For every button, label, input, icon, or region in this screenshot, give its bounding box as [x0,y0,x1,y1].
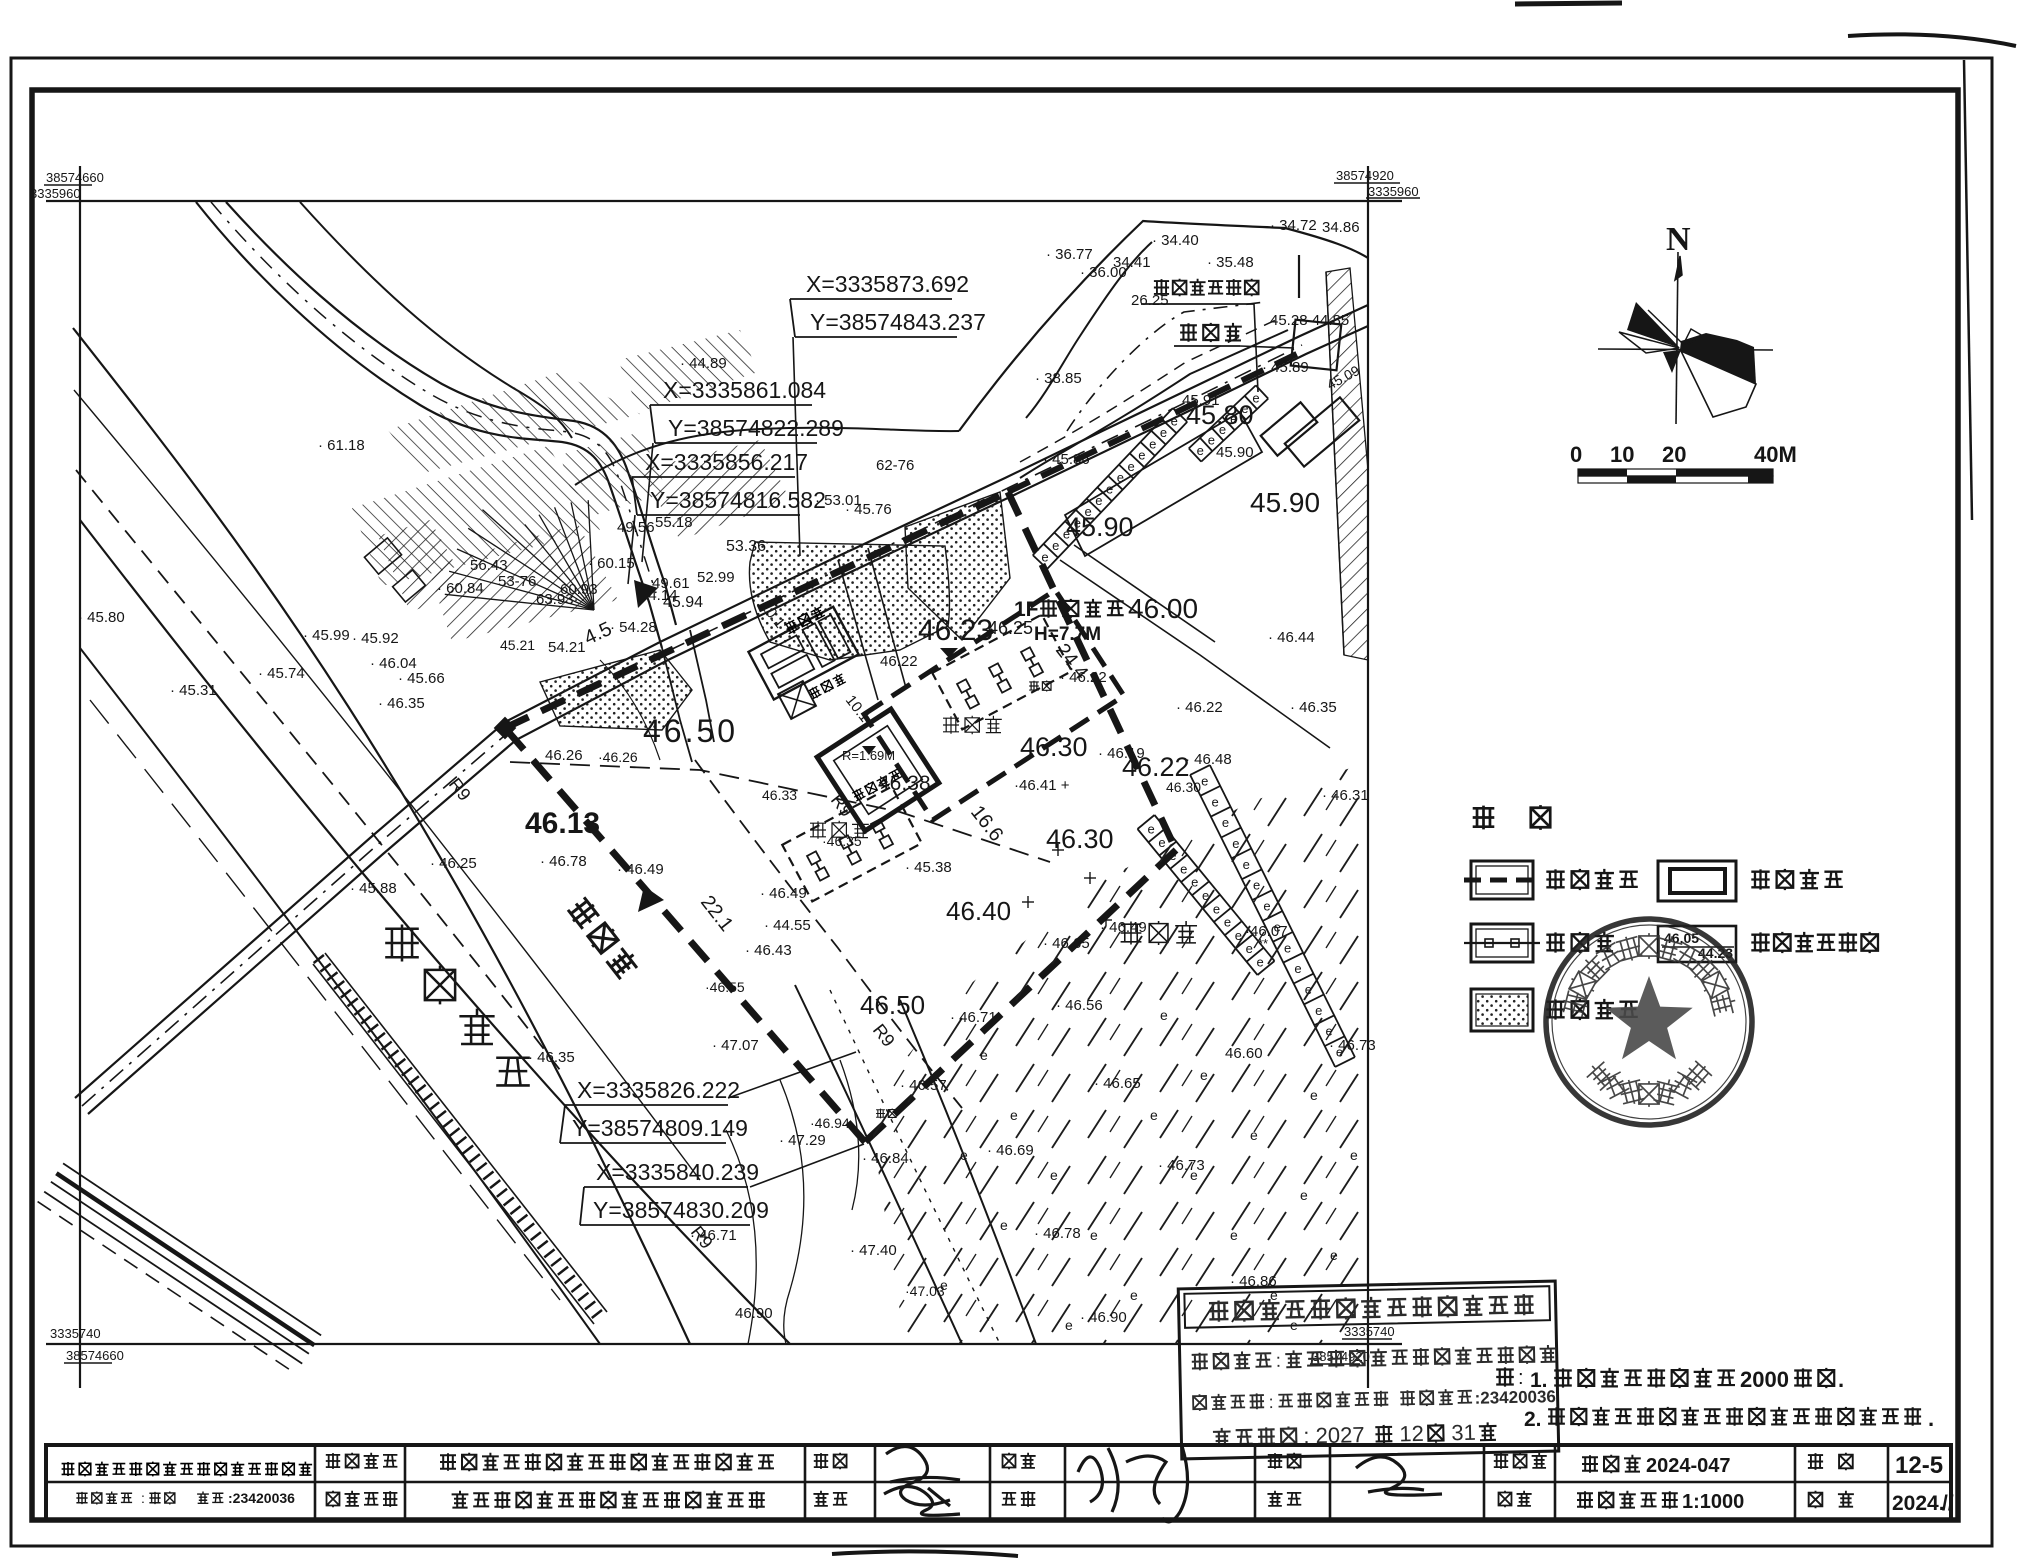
svg-text:46.25: 46.25 [988,618,1033,638]
svg-text:· 46.44: · 46.44 [1268,629,1315,646]
svg-text:e: e [1010,1107,1018,1123]
svg-text:e: e [1063,527,1070,542]
svg-text:· 46.22: · 46.22 [1060,669,1107,686]
svg-text:· 34.72: · 34.72 [1270,217,1317,234]
svg-text::: : [1518,1367,1524,1389]
svg-text:46.50: 46.50 [643,713,738,749]
svg-text:· 44.55: · 44.55 [764,917,811,934]
svg-text:e: e [1160,1007,1168,1023]
svg-text:e: e [1074,515,1081,530]
svg-text:· 34.40: · 34.40 [1152,232,1199,249]
svg-text:· 46.71: · 46.71 [690,1227,737,1244]
svg-text:38574660: 38574660 [66,1348,124,1363]
svg-text:·46.35: ·46.35 [822,833,862,849]
svg-text:e: e [1147,822,1154,837]
svg-text:· 45.80: · 45.80 [78,609,125,626]
svg-text:· 47.40: · 47.40 [850,1242,897,1259]
svg-text:e: e [960,1147,968,1163]
svg-text:e: e [1230,1227,1238,1243]
svg-text:· 46.19: · 46.19 [1098,745,1145,762]
svg-text:45.90: 45.90 [1216,444,1254,461]
svg-text:· 45.99: · 45.99 [303,627,350,644]
svg-text:52.99: 52.99 [697,569,735,586]
svg-text:X=3335826.222: X=3335826.222 [577,1077,740,1103]
svg-text:46.50: 46.50 [860,990,925,1020]
svg-text:34.86: 34.86 [1322,219,1360,236]
svg-text:· 46.71: · 46.71 [950,1009,997,1026]
svg-text:49.56: 49.56 [617,519,655,536]
svg-text:46.60: 46.60 [1225,1045,1263,1062]
svg-text:.: . [1928,1406,1934,1431]
svg-text::: : [1276,1351,1282,1372]
svg-text:· 45.66: · 45.66 [398,670,445,687]
svg-text:· 46.48: · 46.48 [1185,751,1232,768]
svg-text:· 45.38: · 45.38 [905,859,952,876]
svg-text:· 44.89: · 44.89 [680,355,727,372]
svg-text:38574660: 38574660 [46,170,104,185]
svg-text:· 46.57: · 46.57 [900,1077,947,1094]
svg-text:Y=38574816.582: Y=38574816.582 [650,487,826,513]
svg-text:X=3335861.084: X=3335861.084 [663,377,826,403]
svg-text:62-76: 62-76 [876,457,914,474]
svg-text:e: e [1128,459,1135,474]
svg-text:· 61.18: · 61.18 [318,437,365,454]
svg-text:· 46.65: · 46.65 [1043,935,1090,952]
svg-text:· 36.77: · 36.77 [1046,246,1093,263]
svg-text:·46.26: ·46.26 [598,749,638,765]
svg-text:e: e [1200,1067,1208,1083]
svg-text:e: e [1241,401,1248,416]
svg-text:· 35.48: · 35.48 [1207,254,1254,271]
svg-text:e: e [1250,1127,1258,1143]
svg-text:46.33: 46.33 [762,787,797,803]
svg-text:· 46.56: · 46.56 [1056,997,1103,1014]
svg-text:· 46.69: · 46.69 [987,1142,1034,1159]
svg-text:e: e [1065,1317,1073,1333]
svg-text:·46.41 +: ·46.41 + [1014,777,1070,794]
svg-text:· 45.88: · 45.88 [350,880,397,897]
svg-text:e: e [1050,1167,1058,1183]
svg-text:2024-047: 2024-047 [1646,1455,1731,1477]
svg-text:46.90: 46.90 [735,1305,773,1322]
svg-text:·47.03: ·47.03 [905,1283,945,1299]
svg-text:0: 0 [1570,442,1582,467]
svg-text:· 46.90: · 46.90 [1080,1309,1127,1326]
svg-text:·46.94: ·46.94 [810,1115,850,1131]
svg-text:e: e [1208,432,1215,447]
svg-text:46.38: 46.38 [878,772,931,795]
svg-text:12-5: 12-5 [1895,1452,1943,1479]
svg-text:3335740: 3335740 [50,1326,101,1341]
svg-text:X=3335873.692: X=3335873.692 [806,271,969,297]
svg-text:e: e [1138,448,1145,463]
svg-text:46.00: 46.00 [1128,593,1198,624]
svg-text:e: e [1052,538,1059,553]
svg-text:46.30: 46.30 [1046,824,1114,854]
svg-text::23420036: :23420036 [228,1490,295,1506]
svg-text:· 46.49: · 46.49 [760,885,807,902]
svg-text:e: e [1149,436,1156,451]
svg-text:· 46.35: · 46.35 [528,1049,575,1066]
svg-text:46.22: 46.22 [880,653,918,670]
svg-text:3335960: 3335960 [1368,184,1419,199]
svg-text:e: e [1197,443,1204,458]
svg-text:e: e [1330,1247,1338,1263]
svg-text:e: e [1300,1187,1308,1203]
svg-text:X=3335840.239: X=3335840.239 [596,1159,759,1185]
svg-text:53-76: 53-76 [498,573,536,590]
svg-text:· 46.31: · 46.31 [1322,787,1369,804]
svg-text:· 46.78: · 46.78 [540,853,587,870]
svg-text:e: e [1171,414,1178,429]
svg-text:e: e [1310,1087,1318,1103]
svg-text:·46.55: ·46.55 [705,979,745,995]
svg-text:31: 31 [1451,1420,1476,1446]
svg-text:· 46.84: · 46.84 [862,1150,909,1167]
svg-text:46.40: 46.40 [946,896,1011,926]
svg-text:34.41: 34.41 [1113,254,1151,271]
svg-text:60.93: 60.93 [560,581,598,598]
svg-text:e: e [1252,390,1259,405]
svg-text:· 60.15: · 60.15 [588,555,635,572]
svg-text:1.: 1. [1530,1369,1548,1392]
svg-text:2.: 2. [1524,1408,1542,1431]
svg-text:· 46.25: · 46.25 [430,855,477,872]
svg-text:45.21: 45.21 [500,637,535,653]
svg-text:46.23: 46.23 [918,614,993,647]
svg-text:e: e [1212,794,1219,809]
svg-text:45.90: 45.90 [1250,487,1320,518]
svg-text:10: 10 [1610,442,1634,467]
svg-text:e: e [1000,1217,1008,1233]
svg-text:e: e [1160,425,1167,440]
svg-text:· 46.73: · 46.73 [1329,1037,1376,1054]
svg-text://: // [1942,1492,1954,1515]
svg-text:2000: 2000 [1740,1367,1789,1392]
svg-text:· 45.74: · 45.74 [258,665,305,682]
svg-text:Y=38574843.237: Y=38574843.237 [810,309,986,335]
svg-text:e: e [1090,1227,1098,1243]
svg-text:· 46.35: · 46.35 [378,695,425,712]
svg-text:**: ** [1258,936,1268,951]
svg-text:e: e [1084,504,1091,519]
svg-text:· 47.07: · 47.07 [712,1037,759,1054]
svg-text:Y=38574830.209: Y=38574830.209 [593,1197,769,1223]
svg-text:46.30: 46.30 [1166,779,1201,795]
svg-text:.: . [1838,1367,1844,1392]
svg-text:e: e [1350,1147,1358,1163]
svg-text:· 47.29: · 47.29 [779,1132,826,1149]
svg-text:54.21: 54.21 [548,639,586,656]
svg-text::: : [141,1490,145,1506]
svg-text:2024.: 2024. [1892,1492,1945,1515]
svg-text:· 38.85: · 38.85 [1035,370,1082,387]
svg-text:38574920: 38574920 [1336,168,1394,183]
svg-text:· 46.49: · 46.49 [617,861,664,878]
svg-text:46.30: 46.30 [1020,732,1088,762]
svg-text:e: e [1201,773,1208,788]
svg-text:e: e [1041,549,1048,564]
svg-text:12: 12 [1399,1421,1424,1447]
svg-text:· 46.73: · 46.73 [1158,1157,1205,1174]
svg-text:· 46.35: · 46.35 [1290,699,1337,716]
svg-text::: : [1268,1392,1273,1412]
svg-text:· 46.65: · 46.65 [1094,1075,1141,1092]
svg-text:X=3335856.217: X=3335856.217 [645,449,808,475]
svg-text:e: e [1130,1287,1138,1303]
svg-text:· 46.49: · 46.49 [1100,919,1147,936]
svg-text:· 46.43: · 46.43 [745,942,792,959]
svg-text:1:1000: 1:1000 [1682,1491,1744,1513]
svg-text:· 46.78: · 46.78 [1034,1225,1081,1242]
svg-text:Y=38574809.149: Y=38574809.149 [572,1115,748,1141]
svg-text:56.43: 56.43 [470,557,508,574]
svg-text:46.26: 46.26 [545,747,583,764]
svg-text:· 45.31: · 45.31 [170,682,217,699]
svg-text:40M: 40M [1754,442,1797,467]
svg-text:3335960: 3335960 [30,186,81,201]
svg-text:· 45.92: · 45.92 [352,630,399,647]
svg-text:· 54.28: · 54.28 [610,619,657,636]
svg-text:e: e [1150,1107,1158,1123]
svg-text:e: e [980,1047,988,1063]
svg-text:20: 20 [1662,442,1686,467]
svg-text:46.13: 46.13 [525,807,600,840]
svg-text:Y=38574822.289: Y=38574822.289 [668,415,844,441]
svg-text:· 60.84: · 60.84 [437,580,484,597]
svg-text:· 46.22: · 46.22 [1176,699,1223,716]
